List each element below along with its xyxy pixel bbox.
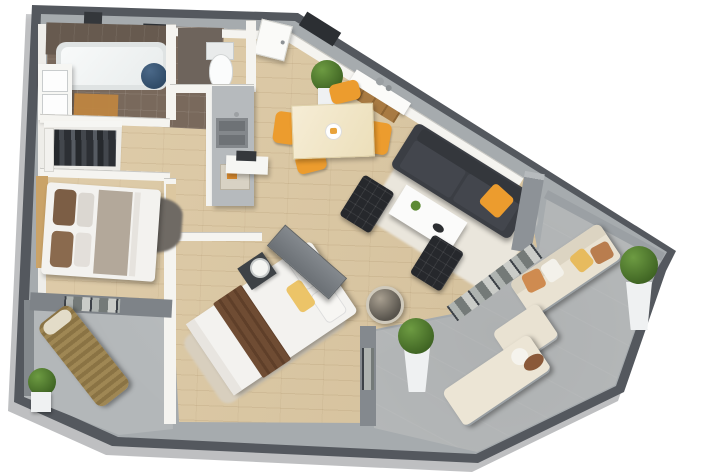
closet-shelving (44, 128, 54, 172)
sink-basin (219, 121, 245, 131)
pillow-light (74, 232, 92, 267)
table-lamp (250, 258, 270, 278)
plate (326, 124, 342, 140)
pillow-brown (49, 231, 73, 268)
faucet-icon (234, 112, 239, 117)
bed-runner (93, 190, 133, 276)
hanging-clothes (54, 129, 117, 166)
food (330, 128, 337, 134)
kitchen-counter (212, 86, 254, 206)
balcony-plant-pot (31, 392, 51, 412)
door-handle-icon (280, 40, 285, 45)
table-plant-icon (409, 199, 423, 213)
laundry-basket (141, 63, 167, 89)
bedroom1-bed (41, 182, 161, 282)
wc-dining-wall (246, 20, 256, 92)
hall-console (226, 155, 269, 174)
pillow-brown (52, 189, 76, 226)
table-bowl-icon (431, 221, 445, 234)
floorplan-scene (0, 0, 709, 474)
kitchen-sink (216, 118, 248, 148)
basket-floor-lamp (366, 286, 404, 324)
sink-basin (42, 70, 68, 92)
terrace-plant (398, 318, 434, 354)
bedroom2-terrace-wall (360, 326, 376, 426)
sink-basin (219, 135, 245, 145)
dining-table (291, 103, 375, 160)
console-decor (236, 151, 256, 162)
vanity (38, 64, 72, 120)
terrace-plant (620, 246, 658, 284)
bedroom2-glass-door (362, 348, 374, 390)
bedroom2-north-wall (176, 232, 262, 241)
closet-shelf (44, 121, 122, 127)
sink-basin (42, 94, 68, 116)
bathroom-wc-wall (166, 24, 176, 120)
pillow-light (76, 192, 94, 227)
